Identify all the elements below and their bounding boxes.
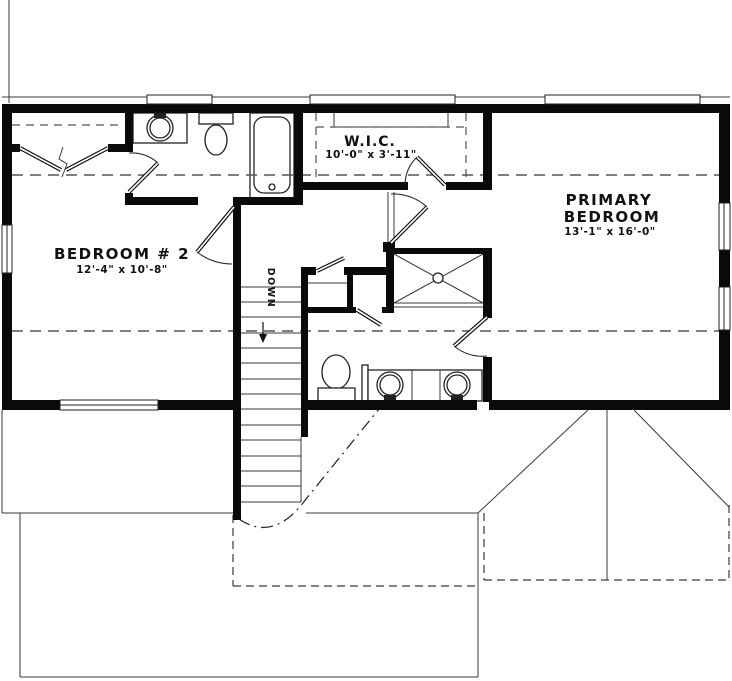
bedroom2-dimensions: 12'-4" x 10'-8" xyxy=(76,264,168,276)
exterior-wall-east xyxy=(719,330,730,410)
exterior-wall-south xyxy=(2,400,60,410)
bathroom-south-wall xyxy=(125,197,198,205)
primary-bedroom-label-line1: PRIMARY xyxy=(566,191,653,209)
window-south xyxy=(60,400,158,410)
wic-south-wall xyxy=(294,182,408,190)
closet-jamb xyxy=(2,144,20,152)
linen-closet-divider xyxy=(347,267,353,313)
window-north-3 xyxy=(545,95,700,104)
floor-plan-canvas: BEDROOM # 2 12'-4" x 10'-8" W.I.C. 10'-0… xyxy=(0,0,732,681)
sink-basin-inner xyxy=(150,118,170,138)
window-east-2 xyxy=(719,287,730,330)
toilet-tank xyxy=(318,388,355,401)
bedroom2-label: BEDROOM # 2 xyxy=(54,245,190,263)
exterior-wall-south xyxy=(158,400,241,410)
toilet-bowl xyxy=(322,355,350,389)
stairs-down-label: DOWN xyxy=(265,268,276,308)
bathtub-basin xyxy=(254,117,290,193)
floor-plan-drawing: BEDROOM # 2 12'-4" x 10'-8" W.I.C. 10'-0… xyxy=(0,0,732,681)
window-north-1 xyxy=(147,95,212,104)
primary-bedroom-dimensions: 13'-1" x 16'-0" xyxy=(564,226,656,238)
stair-west-wall xyxy=(233,205,241,520)
toilet-tank xyxy=(199,113,233,124)
linen-closet-wall xyxy=(301,267,316,275)
bathroom-east-wall xyxy=(483,357,492,402)
primary-bedroom-label-line2: BEDROOM xyxy=(564,208,661,226)
exterior-wall-south xyxy=(489,400,719,410)
closet-jamb xyxy=(108,144,133,152)
wic-label: W.I.C. xyxy=(344,134,396,150)
bathtub-drain xyxy=(269,184,275,190)
exterior-wall-west xyxy=(2,273,12,410)
toilet-bowl xyxy=(205,125,227,155)
linen-closet-wall xyxy=(301,307,356,313)
shower-west-wall xyxy=(386,248,394,313)
bathroom-south-wall xyxy=(233,197,303,205)
sink-basin-inner xyxy=(447,375,467,395)
exterior-wall-east xyxy=(719,250,730,287)
exterior-wall-north xyxy=(2,104,730,113)
window-east-1 xyxy=(719,203,730,250)
window-west xyxy=(2,225,12,273)
shower-drain xyxy=(433,273,443,283)
window-north-2 xyxy=(310,95,455,104)
wic-dimensions: 10'-0" x 3'-11" xyxy=(325,149,417,161)
bathroom-east-wall xyxy=(483,248,492,318)
shower-north-wall xyxy=(386,248,492,254)
exterior-wall-east xyxy=(719,104,730,203)
wic-east-wall xyxy=(483,104,492,190)
exterior-wall-south xyxy=(302,400,477,410)
exterior-wall-west xyxy=(2,104,12,225)
stair-east-wall xyxy=(301,268,308,437)
sink-basin-inner xyxy=(380,375,400,395)
vanity-end-panel xyxy=(362,365,368,401)
